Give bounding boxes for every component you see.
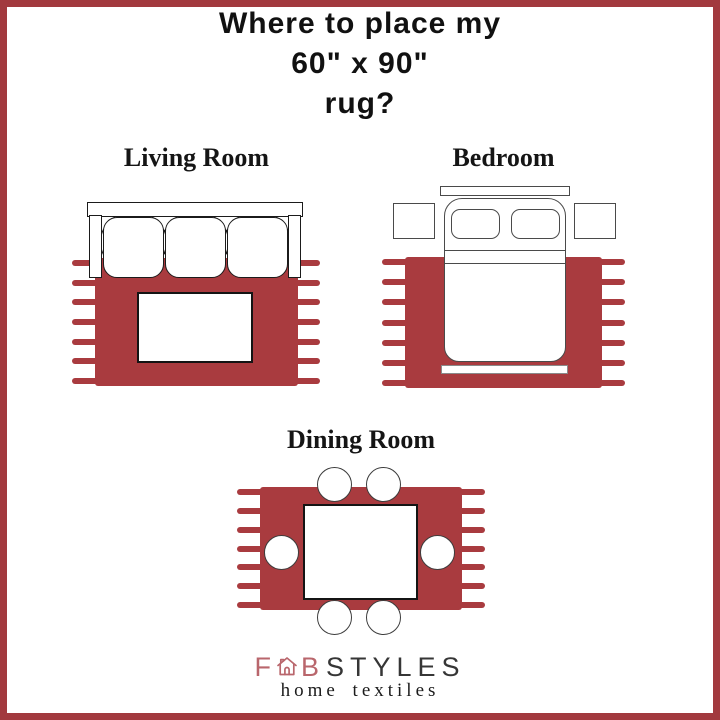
- rug-tassel: [459, 564, 485, 570]
- rug-tassel: [599, 259, 625, 265]
- coffee-table-icon: [137, 292, 253, 363]
- rug-tassel: [459, 546, 485, 552]
- rug-tassel: [599, 320, 625, 326]
- infographic-canvas: Where to place my 60" x 90" rug? Living …: [0, 0, 720, 720]
- logo-tagline: home textiles: [0, 680, 720, 702]
- dining-room-label: Dining Room: [260, 425, 462, 455]
- rug-tassel: [459, 602, 485, 608]
- rug-tassel: [599, 380, 625, 386]
- dining-rug-fringe-right: [459, 487, 485, 610]
- dining-chair-icon: [420, 535, 455, 570]
- dining-table-icon: [303, 504, 418, 600]
- rug-tassel: [459, 583, 485, 589]
- bed-bench-icon: [441, 365, 568, 374]
- bed-sheet-fold-line: [445, 250, 565, 251]
- logo-letter-b: B: [301, 652, 321, 683]
- brand-logo: F B STYLES: [0, 651, 720, 683]
- bedroom-label: Bedroom: [405, 143, 602, 173]
- dining-chair-icon: [264, 535, 299, 570]
- house-icon: [276, 655, 298, 677]
- rug-tassel: [599, 279, 625, 285]
- rug-tassel: [599, 340, 625, 346]
- headboard-icon: [440, 186, 570, 196]
- title-line-3: rug?: [0, 84, 720, 124]
- sofa-armrest-left-icon: [89, 215, 102, 278]
- nightstand-left-icon: [393, 203, 435, 239]
- sofa-seat-cushion-icon: [103, 217, 164, 278]
- rug-tassel: [599, 360, 625, 366]
- rug-tassel: [459, 489, 485, 495]
- title-line-2: 60" x 90": [0, 44, 720, 84]
- rug-tassel: [459, 527, 485, 533]
- pillow-right-icon: [511, 209, 560, 239]
- logo-styles-text: STYLES: [326, 652, 466, 683]
- page-title: Where to place my 60" x 90" rug?: [0, 4, 720, 124]
- dining-chair-icon: [366, 467, 401, 502]
- dining-chair-icon: [317, 600, 352, 635]
- rug-tassel: [599, 299, 625, 305]
- dining-chair-icon: [366, 600, 401, 635]
- title-line-1: Where to place my: [0, 4, 720, 44]
- nightstand-right-icon: [574, 203, 616, 239]
- logo-letter-f: F: [254, 652, 273, 683]
- pillow-left-icon: [451, 209, 500, 239]
- sofa-backrest-icon: [87, 202, 303, 217]
- dining-chair-icon: [317, 467, 352, 502]
- bed-sheet-fold-line: [445, 263, 565, 264]
- sofa-seat-cushion-icon: [227, 217, 288, 278]
- bedroom-rug-fringe-right: [599, 257, 625, 388]
- living-room-label: Living Room: [95, 143, 298, 173]
- sofa-armrest-right-icon: [288, 215, 301, 278]
- sofa-seat-cushion-icon: [165, 217, 226, 278]
- rug-tassel: [459, 508, 485, 514]
